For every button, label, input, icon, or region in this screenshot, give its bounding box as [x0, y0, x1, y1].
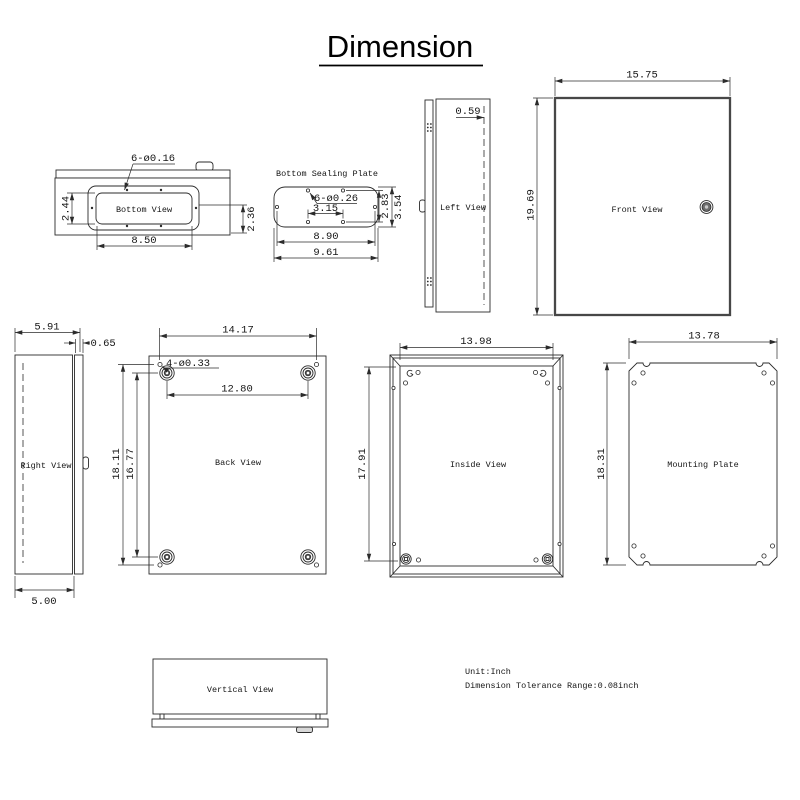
front-view-dim-height: 19.69: [526, 189, 538, 221]
tab-left: [160, 714, 164, 719]
foot-bump: [297, 727, 313, 733]
right-view-dim-flange: 0.65: [91, 338, 116, 350]
title-block: Dimension: [319, 29, 483, 66]
vertical-view: Vertical View: [152, 659, 328, 733]
mounting-plate-dim-height: 18.31: [596, 448, 608, 480]
inside-view-dim-height: 17.91: [357, 448, 369, 480]
dimension-drawing: Dimension Bottom View 6-ø0.16 2.44 8.50 …: [0, 0, 800, 800]
back-view-dim-height: 18.11: [111, 448, 123, 480]
tab-right: [316, 714, 320, 719]
front-view-dim-width: 15.75: [626, 70, 658, 82]
unit-note: Unit:Inch: [465, 667, 511, 677]
left-view-label: Left View: [440, 203, 487, 213]
base-plate: [152, 719, 328, 727]
tolerance-note: Dimension Tolerance Range:0.08inch: [465, 681, 638, 691]
front-view-label: Front View: [611, 205, 663, 215]
back-view-label: Back View: [215, 458, 262, 468]
back-view-dim-boss-span: 12.80: [221, 384, 253, 396]
sealing-plate-dim-plate-height: 3.54: [393, 194, 405, 219]
bottom-view-hole-callout: 6-ø0.16: [131, 153, 175, 165]
sealing-plate-label: Bottom Sealing Plate: [276, 169, 378, 179]
lock-knob: [83, 457, 89, 469]
lock-icon: [700, 201, 713, 214]
right-view-label: Right View: [20, 461, 72, 471]
inside-view-dim-width: 13.98: [460, 336, 492, 348]
bottom-view-label: Bottom View: [116, 205, 173, 215]
bottom-view-dim-cutout-width: 8.50: [131, 235, 156, 247]
door-strip: [75, 355, 84, 574]
mounting-plate-dim-width: 13.78: [688, 331, 720, 343]
sealing-plate-dim-plate-width: 9.61: [313, 247, 338, 259]
back-view-dim-width: 14.17: [222, 325, 254, 337]
sealing-plate-dim-hole-pitch: 3.15: [313, 203, 338, 215]
page-title: Dimension: [327, 29, 473, 64]
right-view-dim-body-depth: 5.00: [31, 596, 56, 608]
back-view-dim-boss-height: 16.77: [125, 448, 137, 480]
mounting-plate-label: Mounting Plate: [667, 460, 738, 470]
left-view-dim-door-depth: 0.59: [455, 106, 480, 118]
bottom-view-dim-cutout-height: 2.44: [61, 196, 73, 221]
right-view-dim-depth: 5.91: [34, 322, 59, 334]
door-edge-strip: [56, 170, 230, 178]
sealing-plate-dim-hole-span: 8.90: [313, 231, 338, 243]
vertical-view-label: Vertical View: [207, 685, 274, 695]
door-strip: [425, 100, 433, 307]
left-view: Left View 0.59: [420, 99, 491, 312]
bottom-view-dim-edge-offset: 2.36: [246, 206, 258, 231]
inside-view-label: Inside View: [450, 460, 507, 470]
sealing-plate-dim-hole-rows: 2.83: [380, 193, 392, 218]
